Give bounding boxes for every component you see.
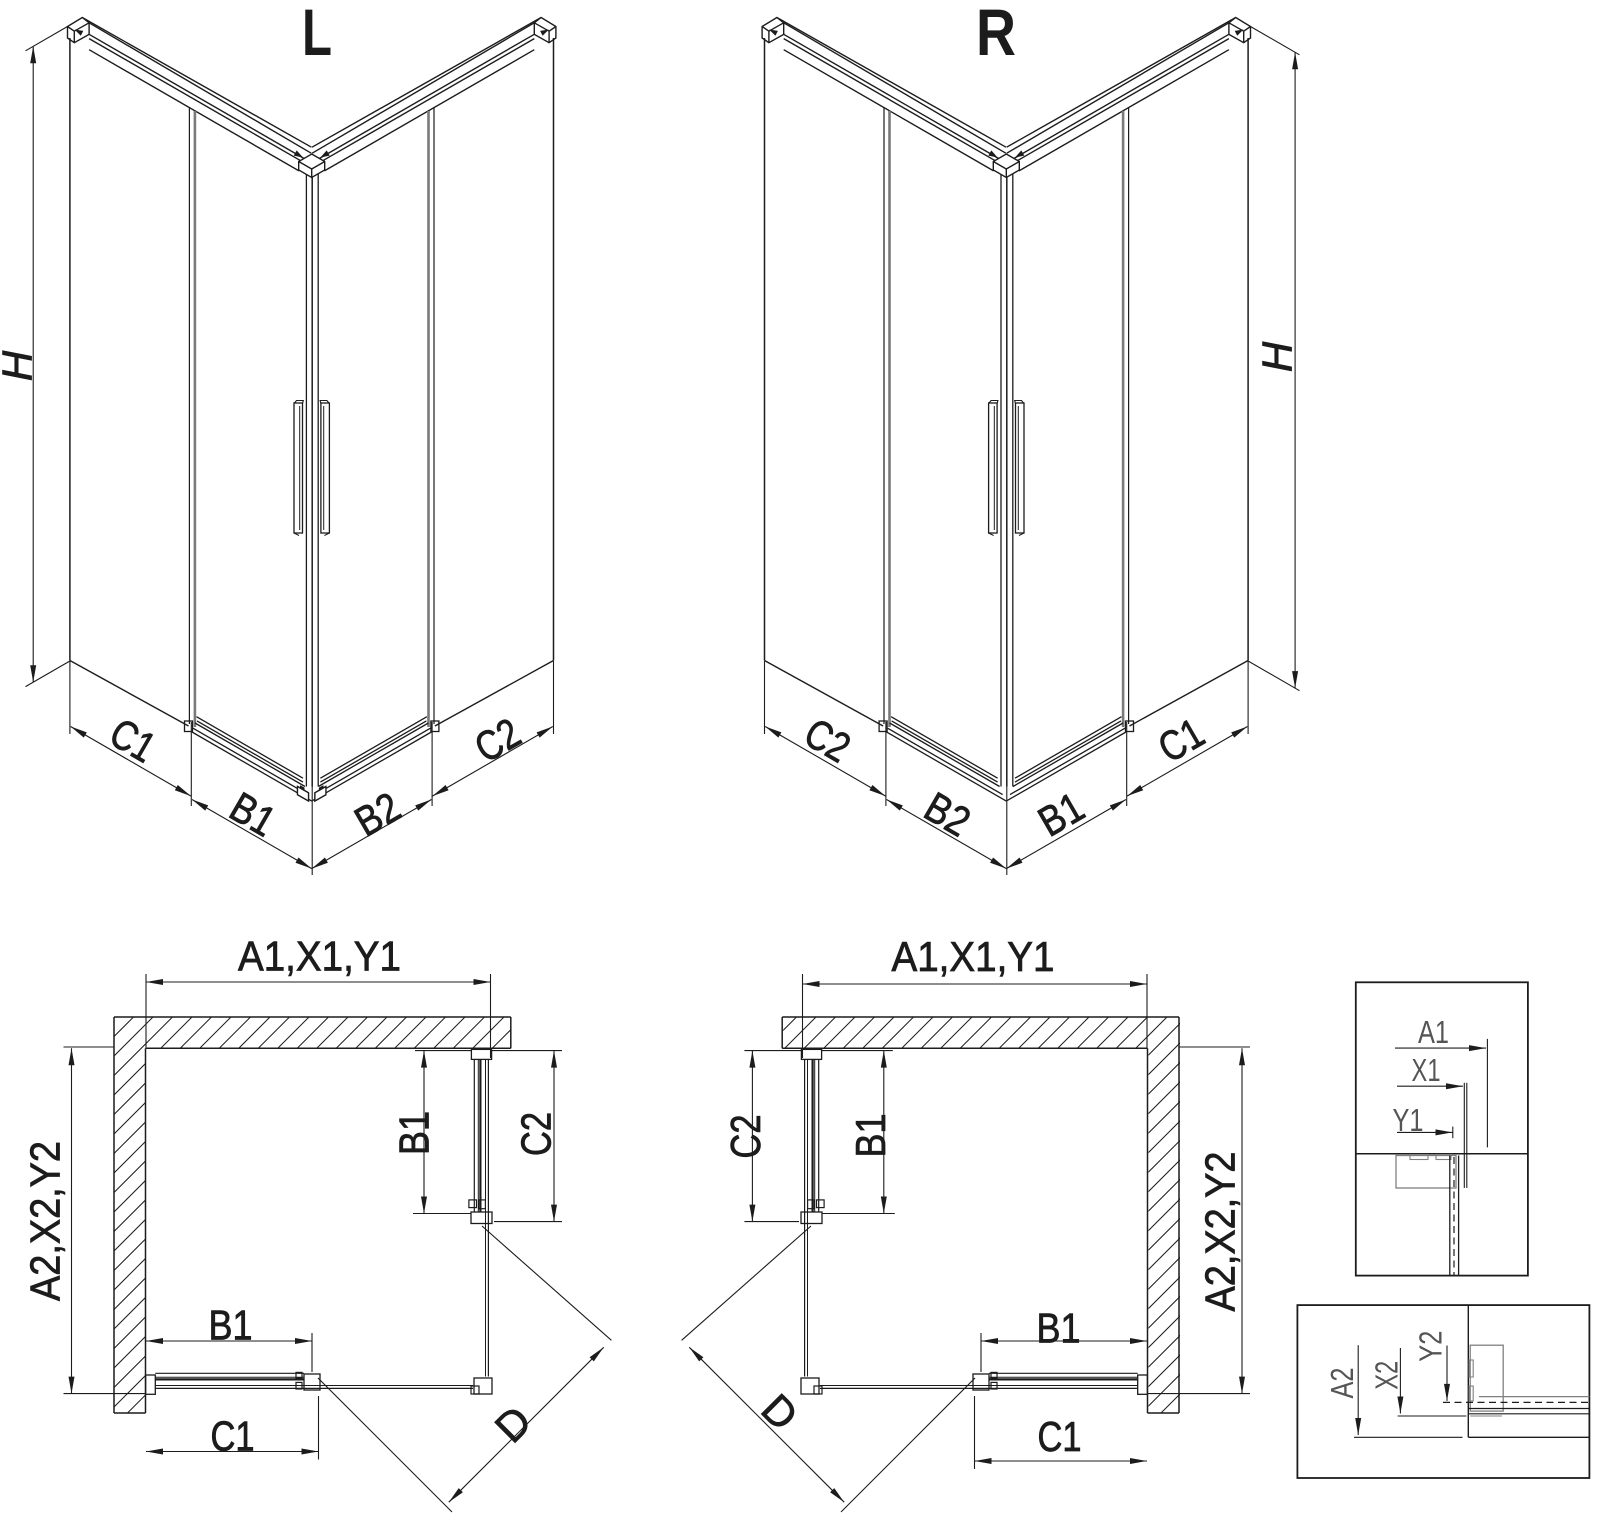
svg-text:A2: A2 — [1324, 1368, 1360, 1399]
svg-text:H: H — [1254, 341, 1301, 372]
svg-text:L: L — [302, 0, 332, 69]
svg-text:X2: X2 — [1369, 1361, 1405, 1390]
svg-text:A1,X1,Y1: A1,X1,Y1 — [892, 933, 1055, 980]
svg-text:C2: C2 — [722, 1115, 769, 1159]
svg-text:C1: C1 — [211, 1413, 255, 1460]
svg-text:B1: B1 — [391, 1111, 438, 1155]
svg-text:A1: A1 — [1418, 1014, 1449, 1050]
svg-text:H: H — [0, 350, 41, 381]
svg-text:R: R — [976, 0, 1016, 69]
svg-text:A1,X1,Y1: A1,X1,Y1 — [238, 933, 401, 980]
svg-text:A2,X2,Y2: A2,X2,Y2 — [22, 1141, 69, 1301]
svg-text:B1: B1 — [209, 1302, 253, 1349]
svg-text:C2: C2 — [513, 1112, 560, 1156]
svg-text:Y2: Y2 — [1413, 1331, 1449, 1362]
svg-text:C1: C1 — [1038, 1413, 1082, 1460]
svg-text:Y1: Y1 — [1393, 1102, 1424, 1138]
svg-text:B1: B1 — [1037, 1305, 1081, 1352]
svg-text:A2,X2,Y2: A2,X2,Y2 — [1197, 1152, 1244, 1312]
svg-text:B1: B1 — [847, 1114, 894, 1158]
svg-text:X1: X1 — [1412, 1052, 1441, 1088]
